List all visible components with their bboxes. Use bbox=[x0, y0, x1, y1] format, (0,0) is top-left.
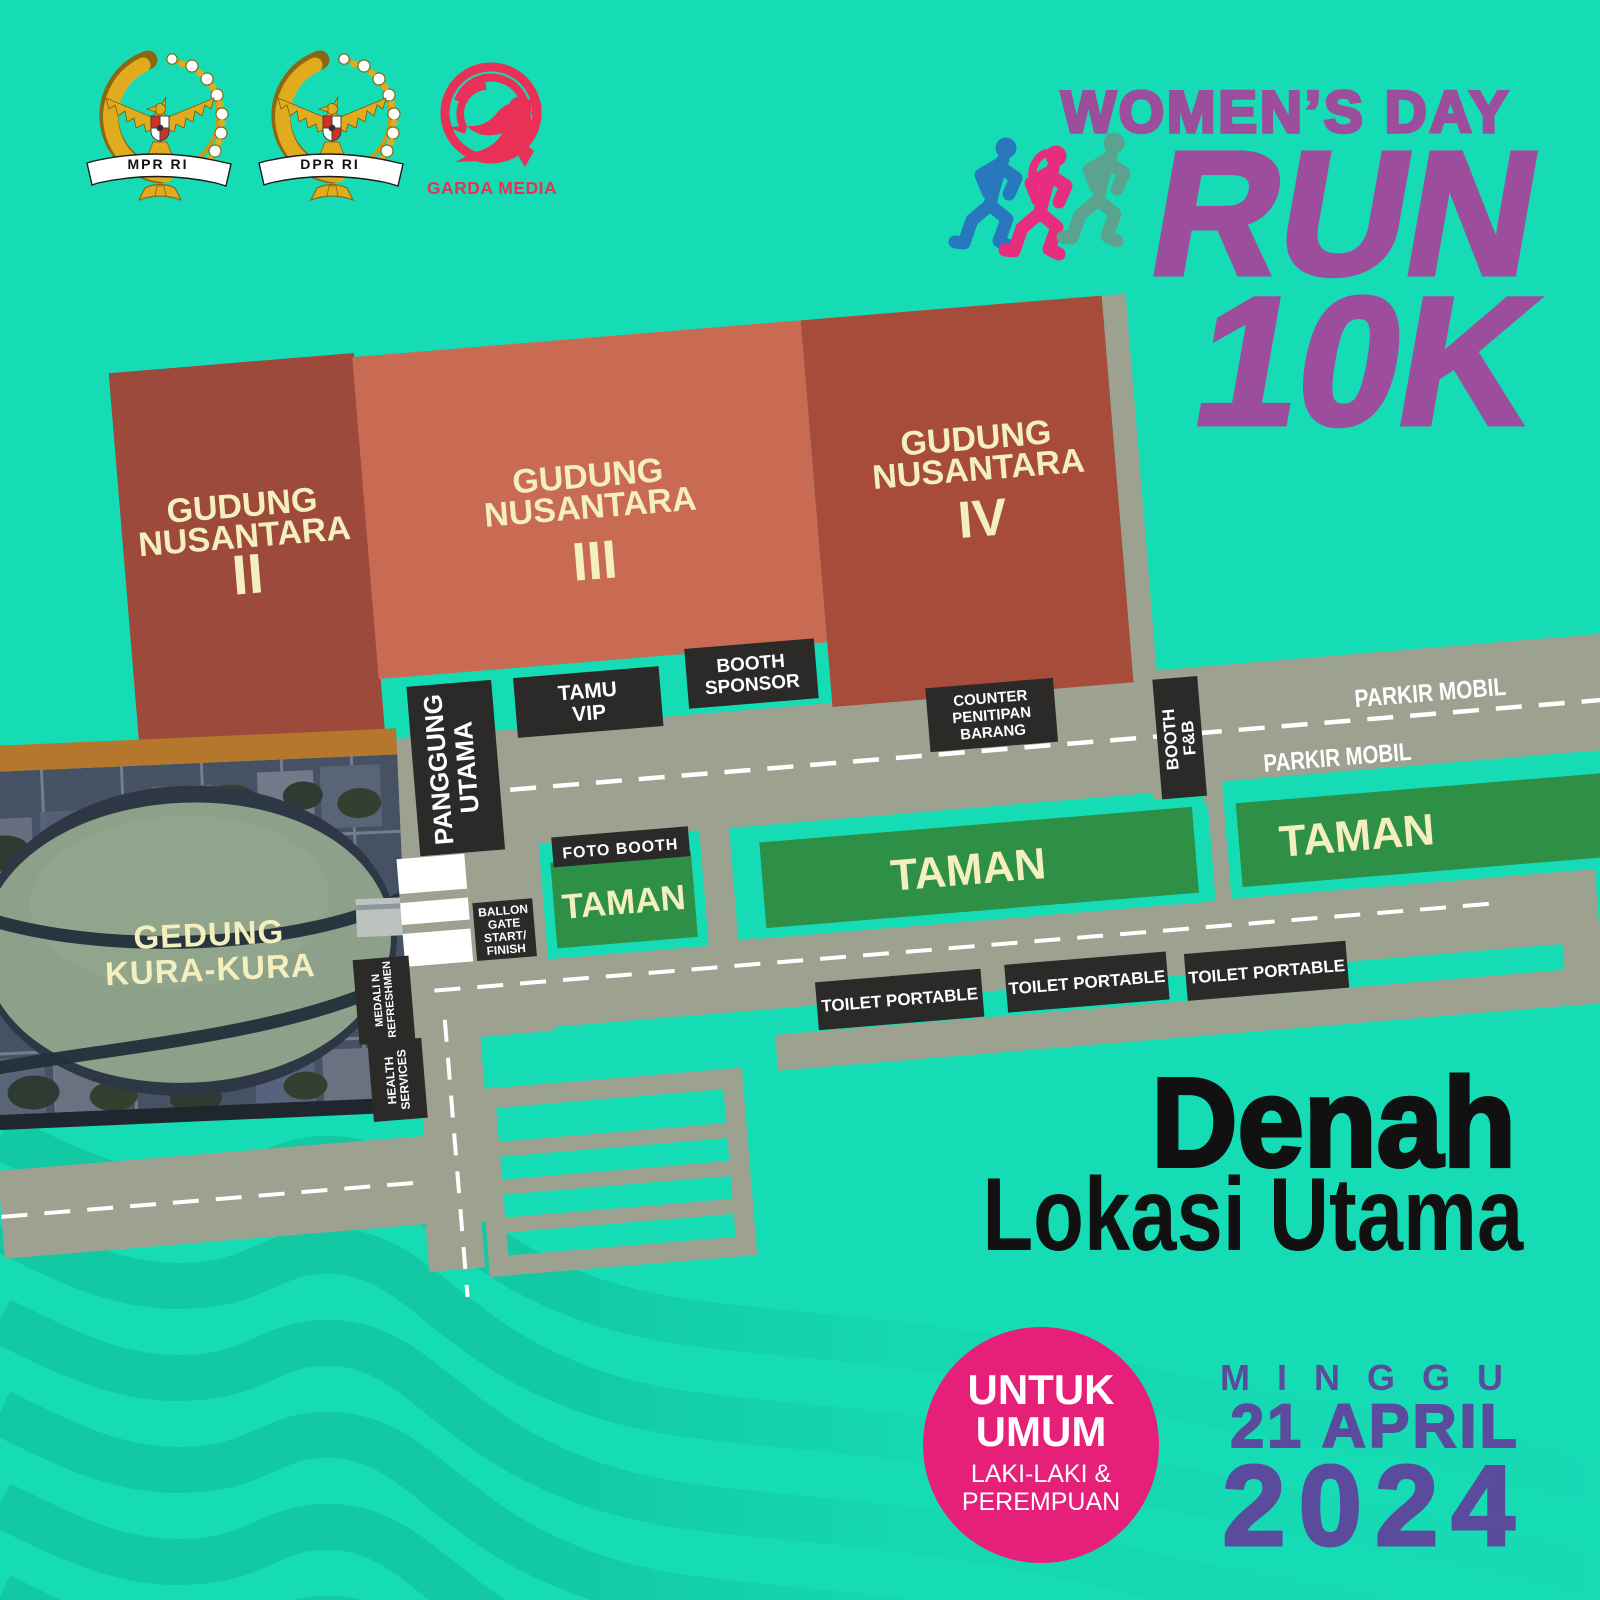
svg-text:UMUM: UMUM bbox=[976, 1408, 1107, 1455]
svg-text:2024: 2024 bbox=[1222, 1443, 1528, 1570]
svg-text:DPR RI: DPR RI bbox=[300, 156, 359, 172]
svg-text:PEREMPUAN: PEREMPUAN bbox=[962, 1488, 1120, 1516]
svg-text:GARDA MEDIA: GARDA MEDIA bbox=[427, 178, 557, 198]
svg-text:UNTUK: UNTUK bbox=[968, 1366, 1115, 1413]
svg-text:MPR RI: MPR RI bbox=[128, 156, 189, 172]
svg-text:IV: IV bbox=[956, 488, 1010, 550]
svg-text:II: II bbox=[230, 541, 266, 606]
svg-text:Lokasi Utama: Lokasi Utama bbox=[982, 1156, 1523, 1272]
svg-text:10K: 10K bbox=[1182, 259, 1552, 462]
svg-text:III: III bbox=[570, 529, 620, 592]
svg-text:F&B: F&B bbox=[1178, 720, 1200, 756]
svg-text:LAKI-LAKI &: LAKI-LAKI & bbox=[971, 1460, 1112, 1488]
svg-text:VIP: VIP bbox=[571, 701, 607, 727]
